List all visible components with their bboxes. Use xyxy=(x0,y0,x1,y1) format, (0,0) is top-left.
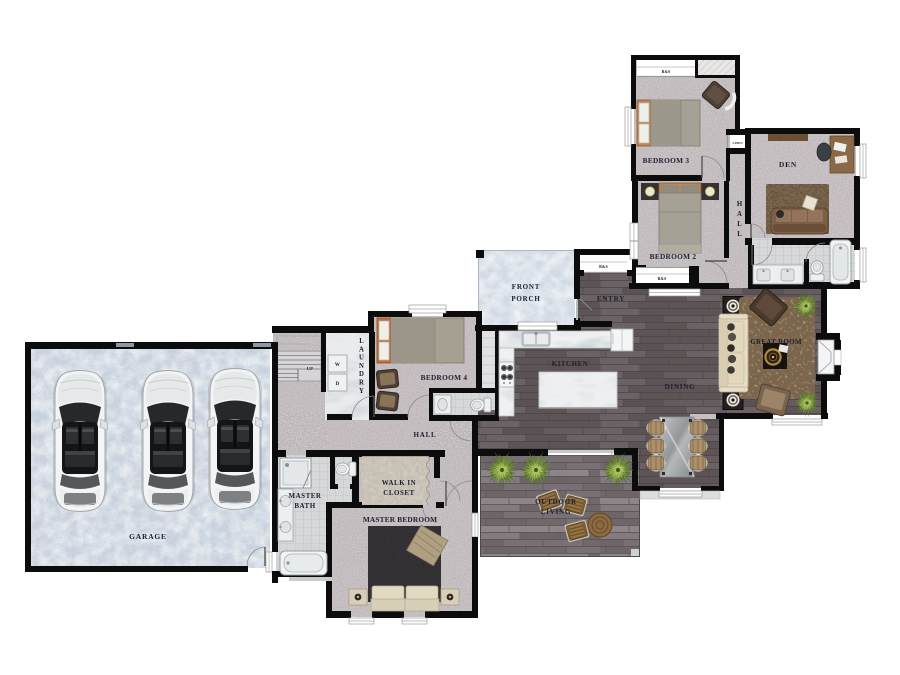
svg-text:U: U xyxy=(359,355,364,362)
svg-text:W: W xyxy=(335,363,340,368)
svg-text:DEN: DEN xyxy=(779,160,797,169)
svg-text:L: L xyxy=(737,231,742,238)
svg-text:D: D xyxy=(336,382,340,387)
svg-text:N: N xyxy=(359,363,364,370)
svg-text:ENTRY: ENTRY xyxy=(597,295,625,303)
svg-text:D: D xyxy=(359,371,364,378)
svg-text:DINING: DINING xyxy=(665,383,696,391)
svg-text:CLOSET: CLOSET xyxy=(383,489,414,497)
svg-text:L: L xyxy=(737,221,742,228)
svg-text:PORCH: PORCH xyxy=(511,295,540,303)
svg-text:LIVING: LIVING xyxy=(541,508,571,516)
svg-text:H: H xyxy=(737,201,743,208)
svg-text:GARAGE: GARAGE xyxy=(129,532,167,541)
svg-text:B&S: B&S xyxy=(599,264,608,269)
svg-text:B&S: B&S xyxy=(662,69,671,74)
svg-text:KITCHEN: KITCHEN xyxy=(552,360,589,368)
svg-text:BEDROOM 2: BEDROOM 2 xyxy=(650,252,697,261)
svg-text:MASTER BEDROOM: MASTER BEDROOM xyxy=(363,515,437,524)
svg-text:LINEN: LINEN xyxy=(732,141,743,145)
svg-text:HALL: HALL xyxy=(413,431,436,439)
svg-text:R: R xyxy=(359,380,364,387)
svg-text:MASTER: MASTER xyxy=(289,492,322,500)
svg-text:GREAT ROOM: GREAT ROOM xyxy=(750,338,802,346)
svg-text:A: A xyxy=(359,346,364,353)
svg-text:A: A xyxy=(737,211,742,218)
svg-text:BEDROOM 4: BEDROOM 4 xyxy=(421,373,468,382)
svg-text:BATH: BATH xyxy=(294,502,315,510)
svg-text:FRONT: FRONT xyxy=(512,283,541,291)
svg-text:B&S: B&S xyxy=(658,276,667,281)
svg-text:WALK IN: WALK IN xyxy=(382,479,416,487)
svg-text:UP: UP xyxy=(307,366,313,371)
svg-text:Y: Y xyxy=(359,388,364,395)
svg-text:OUTDOOR: OUTDOOR xyxy=(535,498,577,506)
svg-text:BEDROOM 3: BEDROOM 3 xyxy=(643,156,690,165)
svg-text:L: L xyxy=(359,338,364,345)
